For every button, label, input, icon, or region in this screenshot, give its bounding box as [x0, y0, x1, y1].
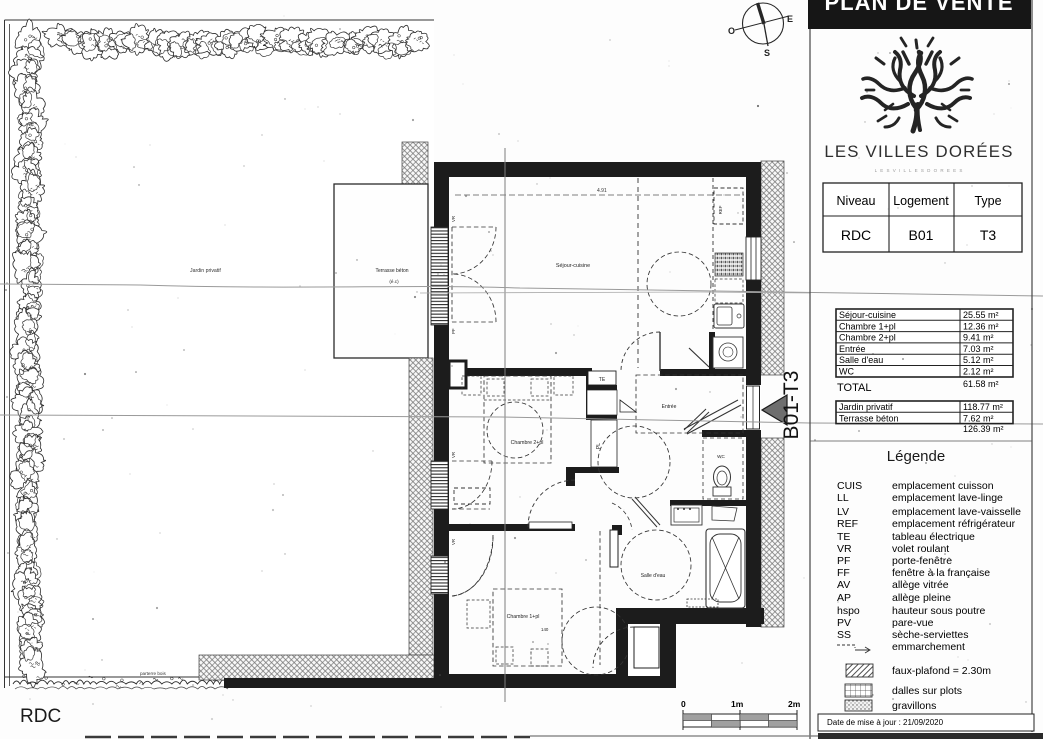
svg-text:5.12 m²: 5.12 m²: [963, 355, 994, 365]
svg-text:RDC: RDC: [20, 706, 61, 727]
svg-text:7.62 m²: 7.62 m²: [963, 413, 994, 423]
svg-text:CUIS: CUIS: [837, 480, 862, 492]
svg-text:emplacement lave-linge: emplacement lave-linge: [892, 492, 1003, 504]
svg-text:emplacement lave-vaisselle: emplacement lave-vaisselle: [892, 506, 1021, 518]
svg-text:T3: T3: [980, 227, 997, 243]
svg-text:Chambre 1+pl: Chambre 1+pl: [839, 321, 896, 331]
svg-text:gravillons: gravillons: [892, 700, 936, 712]
svg-text:faux-plafond = 2.30m: faux-plafond = 2.30m: [892, 665, 991, 677]
svg-text:Terrasse béton: Terrasse béton: [375, 268, 408, 274]
svg-text:S: S: [764, 48, 770, 58]
svg-text:emplacement réfrigérateur: emplacement réfrigérateur: [892, 518, 1016, 530]
svg-text:FF: FF: [837, 567, 850, 579]
svg-text:2m: 2m: [788, 699, 801, 709]
svg-text:porte-fenêtre: porte-fenêtre: [892, 555, 952, 567]
svg-text:O: O: [728, 26, 735, 36]
svg-text:Type: Type: [974, 194, 1001, 208]
svg-text:4.91: 4.91: [597, 188, 607, 194]
svg-text:REF: REF: [837, 518, 858, 530]
svg-text:25.55 m²: 25.55 m²: [963, 310, 999, 320]
svg-text:emmarchement: emmarchement: [892, 641, 965, 653]
svg-text:9.41 m²: 9.41 m²: [963, 333, 994, 343]
svg-text:Séjour-cuisine: Séjour-cuisine: [839, 310, 896, 320]
svg-text:1m: 1m: [731, 699, 744, 709]
svg-text:parterre bois: parterre bois: [140, 671, 166, 676]
svg-text:AP: AP: [837, 592, 851, 604]
svg-text:volet roulant: volet roulant: [892, 543, 949, 555]
svg-text:fenêtre à la française: fenêtre à la française: [892, 567, 990, 579]
svg-text:SS: SS: [837, 629, 851, 641]
svg-text:Chambre 2+pl: Chambre 2+pl: [839, 333, 896, 343]
svg-text:VR: VR: [451, 539, 456, 545]
svg-text:Entrée: Entrée: [662, 404, 677, 410]
svg-text:Date de mise à jour : 21/09/20: Date de mise à jour : 21/09/2020: [827, 718, 944, 727]
svg-text:allège pleine: allège pleine: [892, 592, 951, 604]
svg-text:B01: B01: [909, 227, 934, 243]
svg-text:tableau électrique: tableau électrique: [892, 531, 975, 543]
svg-text:Logement: Logement: [893, 194, 949, 208]
svg-text:hspo: hspo: [837, 605, 860, 617]
svg-text:Séjour-cuisine: Séjour-cuisine: [556, 263, 590, 269]
svg-text:TE: TE: [599, 377, 606, 383]
svg-text:B01-T3: B01-T3: [780, 371, 803, 440]
svg-text:L E S V I L L E S D O R E: L E S V I L L E S D O R E E S: [875, 168, 964, 173]
svg-text:LL: LL: [837, 492, 849, 504]
svg-text:allège vitrée: allège vitrée: [892, 579, 949, 591]
svg-text:AV: AV: [837, 579, 850, 591]
svg-text:PF: PF: [837, 555, 850, 567]
svg-text:Niveau: Niveau: [837, 194, 876, 208]
svg-text:Salle d'eau: Salle d'eau: [641, 573, 666, 579]
svg-text:pare-vue: pare-vue: [892, 617, 934, 629]
svg-text:Jardin privatif: Jardin privatif: [839, 402, 893, 412]
svg-text:emplacement cuisson: emplacement cuisson: [892, 480, 994, 492]
svg-text:PV: PV: [837, 617, 851, 629]
svg-text:Entrée: Entrée: [839, 344, 866, 354]
svg-text:Terrasse béton: Terrasse béton: [839, 413, 899, 423]
svg-text:LES VILLES DORÉES: LES VILLES DORÉES: [824, 142, 1013, 161]
svg-text:VR: VR: [451, 216, 456, 222]
svg-text:Jardin privatif: Jardin privatif: [190, 268, 221, 274]
svg-text:VR: VR: [837, 543, 852, 555]
svg-text:(é.c): (é.c): [389, 279, 399, 284]
svg-text:dalles sur plots: dalles sur plots: [892, 685, 962, 697]
svg-text:140: 140: [541, 627, 549, 632]
svg-text:VR: VR: [451, 452, 456, 458]
svg-text:TOTAL: TOTAL: [837, 382, 871, 394]
svg-text:Chambre 1+pl: Chambre 1+pl: [507, 614, 540, 620]
svg-text:LV: LV: [837, 506, 849, 518]
svg-text:sèche-serviettes: sèche-serviettes: [892, 629, 968, 641]
svg-text:7.03 m²: 7.03 m²: [963, 344, 994, 354]
svg-text:12.36 m²: 12.36 m²: [963, 321, 999, 331]
svg-text:RDC: RDC: [841, 227, 871, 243]
svg-text:118.77 m²: 118.77 m²: [963, 402, 1003, 412]
svg-text:0: 0: [681, 699, 686, 709]
svg-text:REF: REF: [718, 205, 723, 214]
svg-text:WC: WC: [839, 367, 854, 377]
svg-text:126.39 m²: 126.39 m²: [963, 424, 1004, 434]
svg-text:PLAN DE VENTE: PLAN DE VENTE: [824, 0, 1013, 15]
svg-text:hauteur sous poutre: hauteur sous poutre: [892, 605, 986, 617]
svg-text:E: E: [787, 14, 793, 24]
svg-text:Légende: Légende: [887, 448, 945, 465]
svg-text:Salle d'eau: Salle d'eau: [839, 355, 883, 365]
svg-text:TE: TE: [837, 531, 850, 543]
svg-text:PF: PF: [451, 328, 456, 334]
svg-text:2.12 m²: 2.12 m²: [963, 367, 994, 377]
svg-text:61.58 m²: 61.58 m²: [963, 379, 999, 389]
